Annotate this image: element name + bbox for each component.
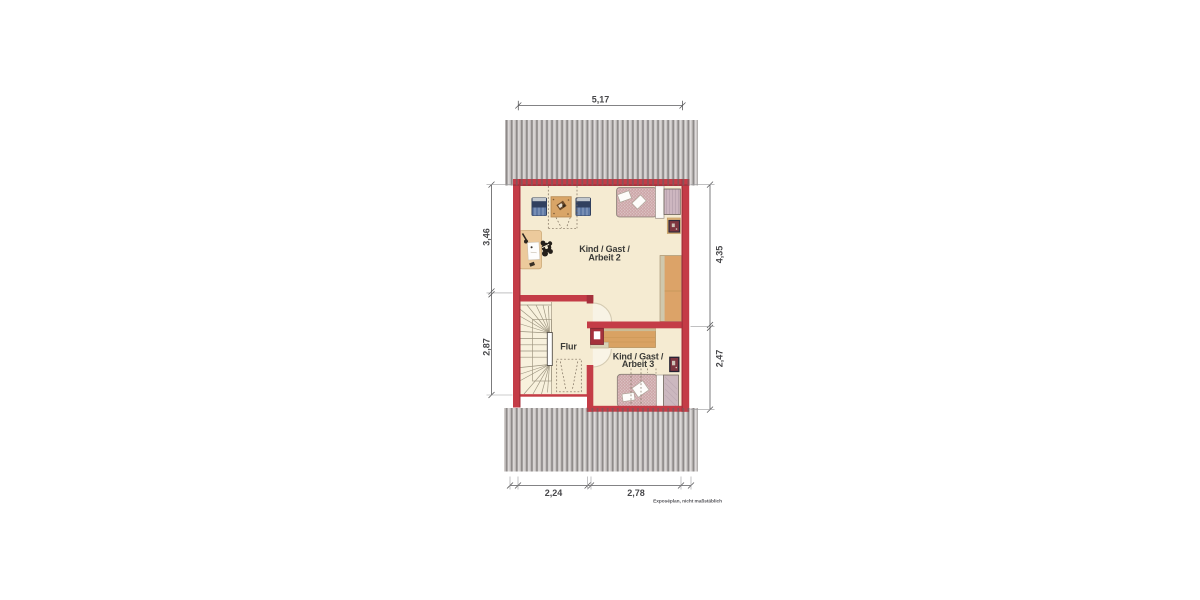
svg-text:Arbeit 3: Arbeit 3 [622, 359, 654, 369]
svg-text:Flur: Flur [560, 342, 577, 352]
svg-text:2,87: 2,87 [482, 338, 492, 356]
svg-text:Arbeit 2: Arbeit 2 [588, 252, 620, 262]
svg-text:3,46: 3,46 [482, 228, 492, 246]
svg-text:Exposéplan, nicht maßstäblich: Exposéplan, nicht maßstäblich [653, 499, 722, 505]
svg-text:2,78: 2,78 [627, 488, 645, 498]
svg-text:5,17: 5,17 [592, 94, 610, 104]
svg-text:4,35: 4,35 [715, 246, 725, 264]
svg-text:2,47: 2,47 [715, 350, 725, 368]
svg-text:2,24: 2,24 [545, 488, 563, 498]
